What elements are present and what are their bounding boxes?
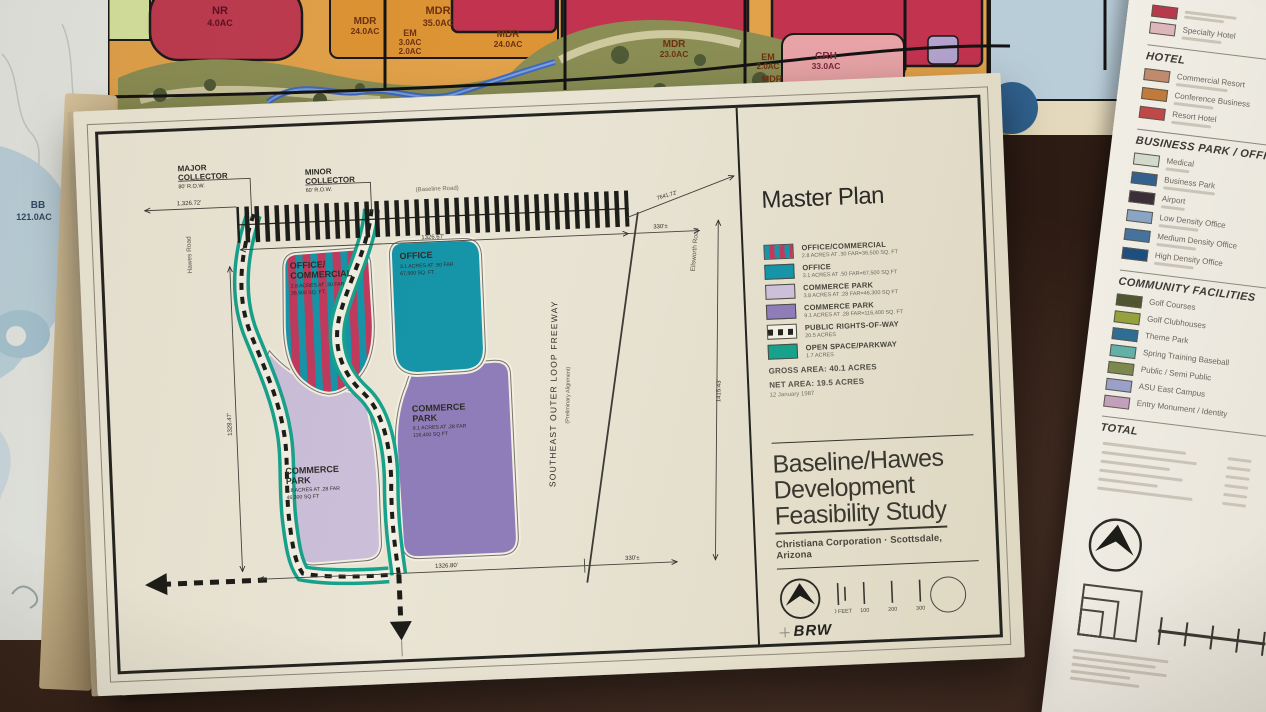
scale-bar: 0 FEET 100 200 300 bbox=[833, 577, 926, 615]
parcel-label: 24.0AC bbox=[351, 26, 380, 36]
baseline-road-label: (Baseline Road) bbox=[416, 186, 459, 194]
parcel-label: 24.0AC bbox=[494, 39, 523, 49]
parcel-label: EM bbox=[403, 28, 417, 38]
legend-label: ASU East Campus bbox=[1138, 382, 1205, 399]
parcel-label: MDR bbox=[425, 5, 450, 17]
photo-of-master-plan-boards: 2.0AC NR 4.0AC MDR 35.0AC MDR 24.0AC EM … bbox=[0, 0, 1266, 712]
brw-logo: BRW bbox=[793, 621, 832, 640]
master-plan-poster-board: MAJOR COLLECTOR 80' R.O.W. MINOR COLLECT… bbox=[73, 73, 1025, 696]
key-map bbox=[1075, 581, 1146, 646]
north-arrow-icon bbox=[777, 576, 823, 622]
parcel-label: 2.0AC bbox=[399, 47, 422, 56]
dim-right: 1415.43' bbox=[716, 379, 722, 402]
south-exit-arrow bbox=[388, 574, 413, 657]
freeway-alignment-line bbox=[572, 212, 653, 582]
legend-label: Golf Courses bbox=[1149, 297, 1196, 312]
parcel-label: 35.0AC bbox=[423, 18, 454, 28]
land-use-swatch-icon bbox=[1103, 395, 1130, 410]
poster-footer: 0 FEET 100 200 300 BRW bbox=[777, 567, 982, 647]
dim-bottom-right: 330'± bbox=[625, 555, 640, 562]
land-use-swatch-icon bbox=[1128, 190, 1155, 205]
commerce-park-swatch-icon bbox=[766, 304, 797, 320]
left-exit-arrow bbox=[145, 569, 268, 596]
rights-of-way-swatch-icon bbox=[767, 324, 798, 340]
scale-label: 0 FEET bbox=[833, 608, 852, 615]
land-use-swatch-icon bbox=[1109, 344, 1136, 359]
office-commercial-swatch-icon bbox=[763, 244, 794, 260]
legend-label: Golf Clubhouses bbox=[1147, 314, 1207, 330]
site-plan-drawing: MAJOR COLLECTOR 80' R.O.W. MINOR COLLECT… bbox=[98, 108, 755, 670]
land-use-swatch-icon bbox=[1113, 310, 1140, 325]
parcel-label-bb: BB bbox=[31, 200, 45, 211]
minor-collector-row: 60' R.O.W. bbox=[306, 187, 333, 194]
scale-label: 100 bbox=[860, 608, 869, 614]
freeway-sublabel: (Preliminary Alignment) bbox=[565, 367, 572, 424]
total-table bbox=[1097, 440, 1266, 514]
dim-top-right: 330'± bbox=[653, 224, 668, 231]
land-use-swatch-icon bbox=[1143, 68, 1170, 83]
land-use-swatch-icon bbox=[1116, 293, 1143, 308]
svg-text:PARK: PARK bbox=[412, 413, 438, 424]
scale-label: 300 bbox=[916, 605, 925, 611]
land-use-swatch-icon bbox=[1107, 361, 1134, 376]
dim-bottom: 1326.80' bbox=[435, 563, 458, 570]
legend-label: Airport bbox=[1161, 194, 1186, 206]
land-use-swatch-icon bbox=[1105, 378, 1132, 393]
parcel-label: 3.0AC bbox=[399, 38, 422, 47]
open-space-swatch-icon bbox=[768, 344, 799, 360]
project-title-line: Feasibility Study bbox=[774, 496, 947, 534]
parcel-label: 33.0AC bbox=[812, 61, 841, 71]
title-block-rule bbox=[772, 434, 974, 443]
parcel-label: EM bbox=[761, 52, 775, 62]
stamp-circle bbox=[929, 576, 966, 613]
project-subtitle: Christiana Corporation · Scottsdale, Ari… bbox=[776, 531, 979, 561]
major-collector-label: COLLECTOR bbox=[178, 171, 228, 182]
land-use-swatch-icon bbox=[1124, 228, 1151, 243]
parcel-label: NR bbox=[212, 5, 228, 17]
major-collector-row: 80' R.O.W. bbox=[178, 183, 205, 190]
minor-collector-label: COLLECTOR bbox=[305, 175, 355, 186]
master-plan-title: Master Plan bbox=[761, 178, 964, 214]
svg-text:OFFICE: OFFICE bbox=[399, 250, 432, 261]
land-use-swatch-icon bbox=[1141, 87, 1168, 102]
land-use-swatch-icon bbox=[1149, 21, 1176, 36]
freeway-label: SOUTHEAST OUTER LOOP FREEWAY bbox=[547, 300, 559, 487]
scale-bar bbox=[1154, 609, 1266, 662]
north-arrow-icon bbox=[1083, 513, 1148, 578]
office-swatch-icon bbox=[764, 264, 795, 280]
hawes-road-label: Hawes Road bbox=[185, 236, 194, 274]
dim-top: 1326.67' bbox=[421, 234, 444, 241]
parcel-label: 2.0AC bbox=[757, 62, 780, 71]
dim-left: 1328.47' bbox=[227, 413, 234, 436]
svg-text:PARK: PARK bbox=[286, 475, 312, 486]
parcel-commerce-park-east bbox=[392, 360, 519, 560]
land-use-swatch-icon bbox=[1121, 247, 1148, 262]
land-use-swatch-icon bbox=[1131, 171, 1158, 186]
parcel-label-bb-acres: 121.0AC bbox=[16, 212, 52, 222]
land-use-swatch-icon bbox=[1139, 106, 1166, 121]
ellsworth-road-label: Ellsworth Road bbox=[690, 227, 701, 272]
dim-far-right: 7641.72' bbox=[656, 190, 678, 202]
commerce-park-swatch-icon bbox=[765, 284, 796, 300]
land-use-swatch-icon bbox=[1133, 152, 1160, 167]
parcel-label: 23.0AC bbox=[660, 49, 689, 59]
legend-label: Public / Semi Public bbox=[1140, 365, 1211, 383]
dim-top-left: 1,326.72' bbox=[177, 200, 202, 207]
project-title-block: Baseline/Hawes Development Feasibility S… bbox=[772, 443, 978, 561]
legend-label: Theme Park bbox=[1145, 331, 1189, 345]
legend-label: Medical bbox=[1166, 156, 1194, 168]
land-use-swatch-icon bbox=[1151, 5, 1178, 20]
scale-label: 200 bbox=[888, 607, 897, 613]
parcel-label: 4.0AC bbox=[207, 18, 233, 28]
poster-right-column: Master Plan OFFICE/COMMERCIAL 2.8 ACRES … bbox=[746, 98, 990, 644]
land-use-swatch-icon bbox=[1111, 327, 1138, 342]
land-use-legend: OFFICE/COMMERCIAL 2.8 ACRES AT .30 FAR=3… bbox=[763, 236, 970, 361]
land-use-swatch-icon bbox=[1126, 209, 1153, 224]
